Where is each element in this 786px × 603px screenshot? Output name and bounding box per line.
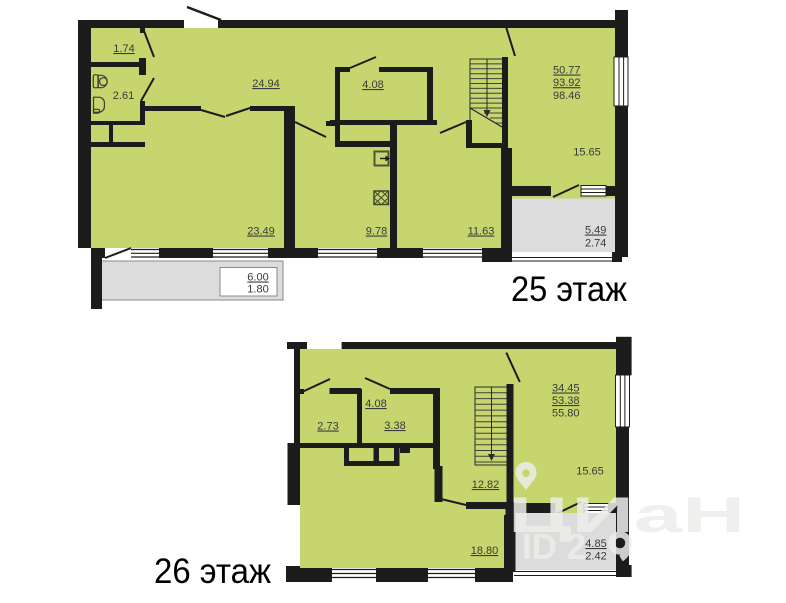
svg-text:5.49: 5.49 bbox=[585, 225, 606, 237]
svg-text:34.45: 34.45 bbox=[552, 383, 580, 395]
svg-text:93.92: 93.92 bbox=[553, 77, 581, 89]
svg-text:2.61: 2.61 bbox=[113, 90, 134, 102]
svg-text:4.08: 4.08 bbox=[365, 398, 386, 410]
svg-text:3.38: 3.38 bbox=[384, 420, 405, 432]
svg-text:15.65: 15.65 bbox=[573, 147, 601, 159]
svg-text:55.80: 55.80 bbox=[552, 408, 580, 420]
svg-text:18.80: 18.80 bbox=[471, 545, 499, 557]
svg-text:53.38: 53.38 bbox=[552, 395, 580, 407]
svg-text:15.65: 15.65 bbox=[576, 466, 604, 478]
svg-text:2.74: 2.74 bbox=[585, 238, 606, 250]
svg-text:25 этаж: 25 этаж bbox=[511, 269, 627, 309]
svg-text:23.49: 23.49 bbox=[247, 226, 275, 238]
svg-text:9.78: 9.78 bbox=[366, 226, 387, 238]
svg-text:2.42: 2.42 bbox=[585, 551, 606, 563]
svg-text:12.82: 12.82 bbox=[472, 479, 500, 491]
svg-text:98.46: 98.46 bbox=[553, 90, 581, 102]
svg-text:1.74: 1.74 bbox=[113, 43, 134, 55]
svg-text:ID 2: ID 2 bbox=[522, 526, 586, 567]
svg-text:2.73: 2.73 bbox=[317, 421, 338, 433]
svg-text:1.80: 1.80 bbox=[247, 284, 268, 296]
svg-text:11.63: 11.63 bbox=[468, 226, 495, 238]
svg-text:6.00: 6.00 bbox=[247, 272, 268, 284]
svg-text:24.94: 24.94 bbox=[252, 78, 280, 90]
svg-text:26 этаж: 26 этаж bbox=[154, 551, 271, 591]
svg-text:50.77: 50.77 bbox=[553, 65, 581, 77]
svg-text:4.08: 4.08 bbox=[362, 79, 383, 91]
